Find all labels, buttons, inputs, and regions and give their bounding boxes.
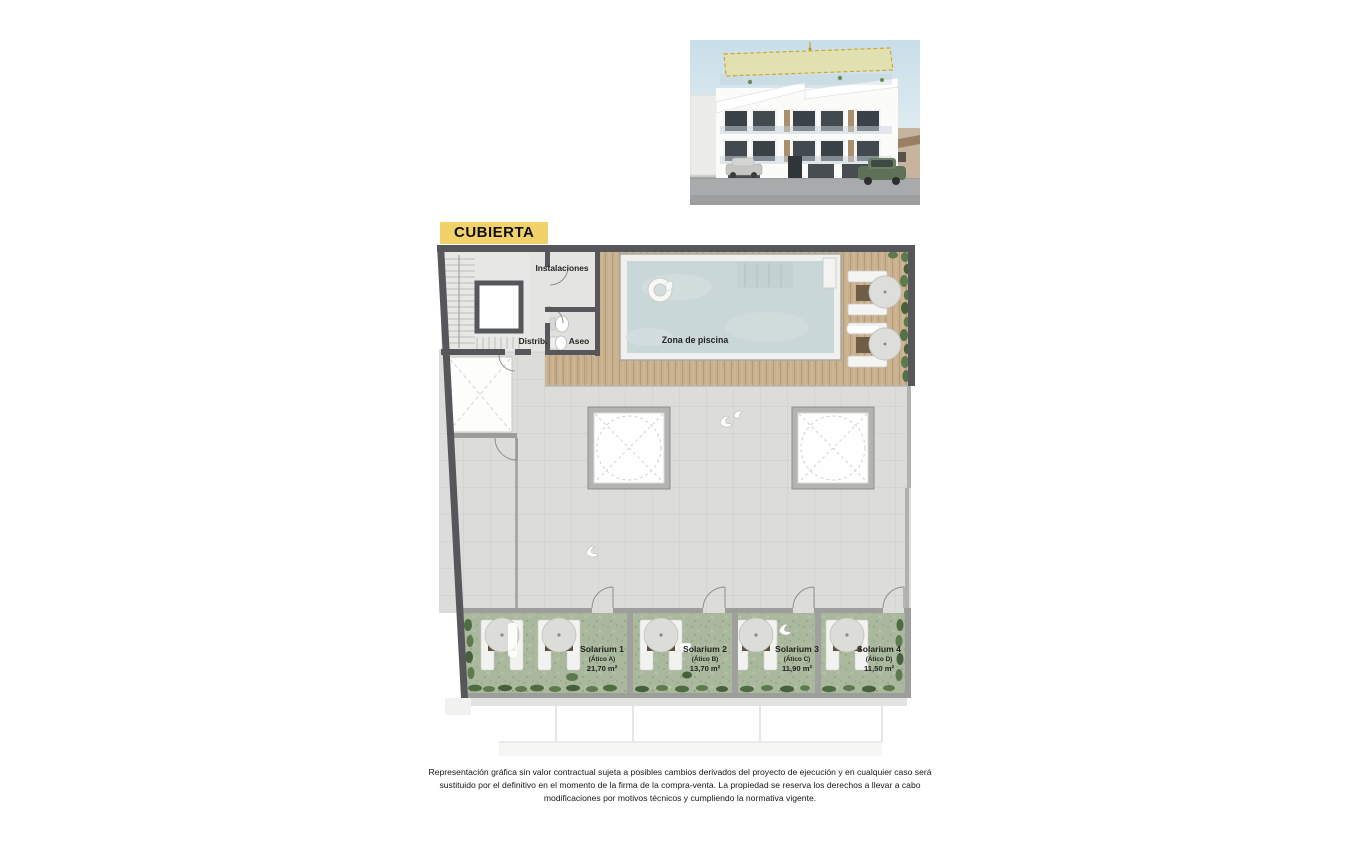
svg-text:11,50 m²: 11,50 m² — [864, 664, 894, 673]
svg-text:Solarium 4: Solarium 4 — [857, 644, 901, 654]
toilet-icon — [550, 316, 569, 332]
floor-plan-graphic: Zona de piscina — [437, 245, 917, 760]
aseo-label: Aseo — [569, 336, 589, 346]
ghost-lower-floor — [445, 698, 907, 756]
parasol-icon — [542, 618, 576, 652]
skylight-1 — [588, 407, 670, 489]
parasol-icon — [644, 618, 678, 652]
svg-text:Solarium 1: Solarium 1 — [580, 644, 624, 654]
parasol-icon — [739, 618, 773, 652]
svg-text:(Ático B): (Ático B) — [692, 654, 719, 663]
elevator-icon — [477, 283, 521, 331]
left-void-skylight — [448, 357, 512, 432]
building-photo — [690, 40, 920, 205]
svg-text:Solarium 2: Solarium 2 — [683, 644, 727, 654]
svg-text:(Ático C): (Ático C) — [784, 654, 811, 663]
cubierta-badge: CUBIERTA — [440, 222, 548, 244]
building-render-graphic — [690, 40, 920, 205]
svg-text:21,70 m²: 21,70 m² — [587, 664, 618, 673]
distrib-label: Distrib. — [519, 336, 548, 346]
disclaimer-text: Representación gráfica sin valor contrac… — [410, 766, 950, 805]
svg-text:(Ático A): (Ático A) — [589, 654, 615, 663]
parasol-icon — [869, 276, 901, 308]
svg-text:Solarium 3: Solarium 3 — [775, 644, 819, 654]
pool-zone-label: Zona de piscina — [662, 335, 729, 345]
instalaciones-label: Instalaciones — [535, 263, 588, 273]
svg-text:(Ático D): (Ático D) — [866, 654, 893, 663]
floor-plan: Zona de piscina — [437, 245, 917, 760]
pool: Zona de piscina — [620, 254, 841, 360]
svg-text:13,70 m²: 13,70 m² — [690, 664, 721, 673]
sink-icon — [550, 336, 567, 350]
parasol-icon — [869, 328, 901, 360]
solarium-strip: Solarium 1 (Ático A) 21,70 m² Solarium 2… — [461, 608, 911, 698]
skylight-2 — [792, 407, 874, 489]
cubierta-badge-label: CUBIERTA — [454, 224, 534, 241]
pool-shower-icon — [823, 258, 836, 288]
pool-steps — [737, 262, 793, 288]
svg-text:11,90 m²: 11,90 m² — [782, 664, 812, 673]
